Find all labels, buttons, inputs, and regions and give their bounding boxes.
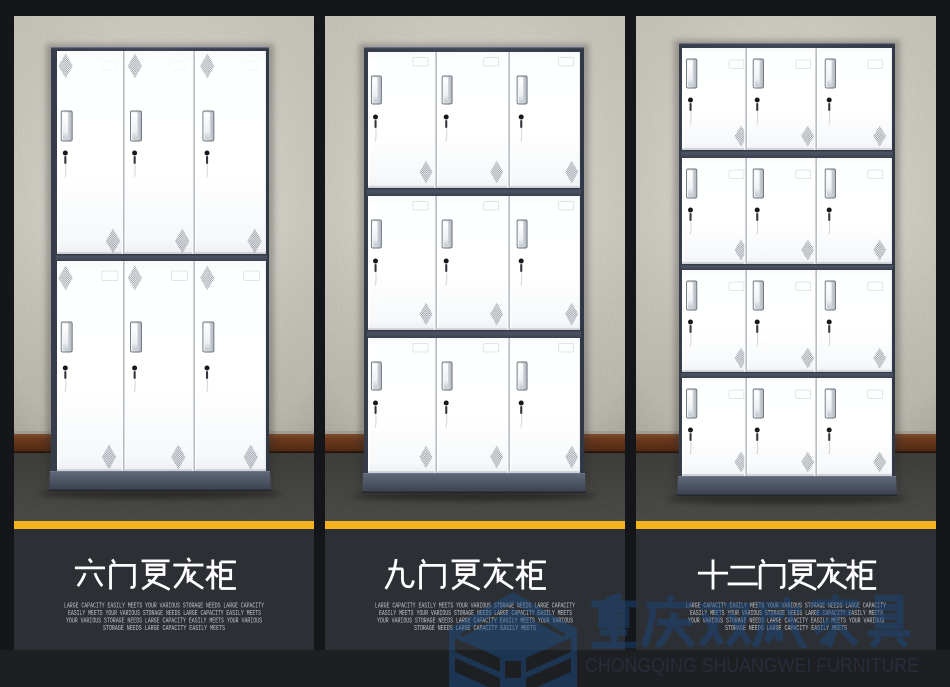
svg-text:CHONGQING SHUANGWEI FURNITURE: CHONGQING SHUANGWEI FURNITURE — [585, 654, 919, 677]
svg-text:STORAGE NEEDS LARGE CAPACITY E: STORAGE NEEDS LARGE CAPACITY EASILY MEET… — [103, 625, 225, 633]
